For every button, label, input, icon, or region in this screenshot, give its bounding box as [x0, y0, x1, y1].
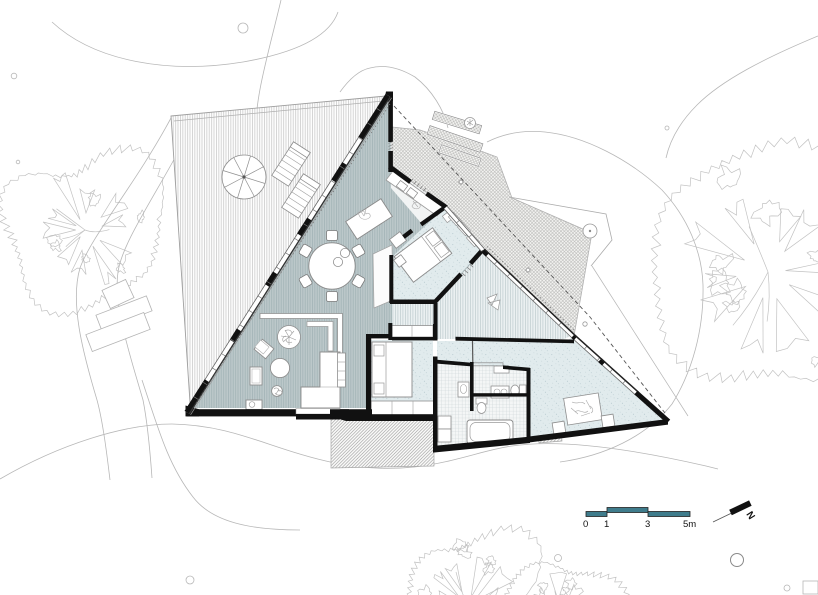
svg-text:3: 3	[645, 519, 650, 530]
svg-text:1: 1	[604, 519, 609, 530]
svg-text:0: 0	[583, 519, 588, 530]
svg-text:5m: 5m	[683, 519, 696, 530]
